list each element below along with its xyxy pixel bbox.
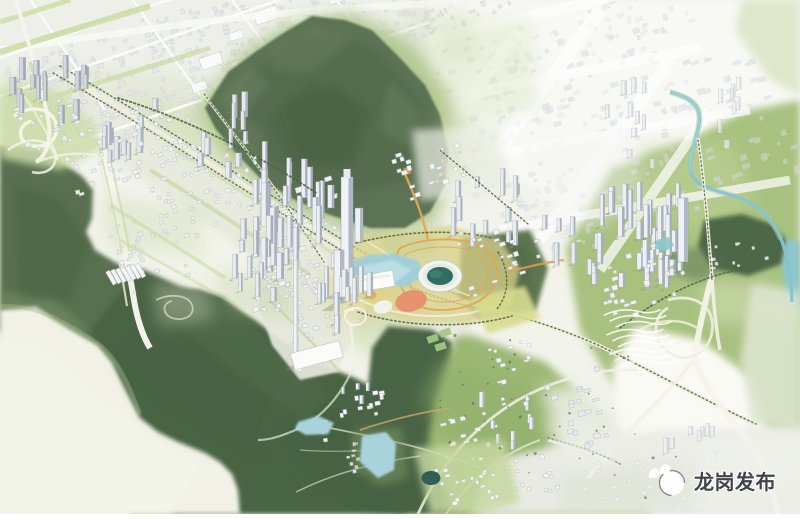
svg-text:龙岗发布: 龙岗发布 xyxy=(694,470,776,494)
